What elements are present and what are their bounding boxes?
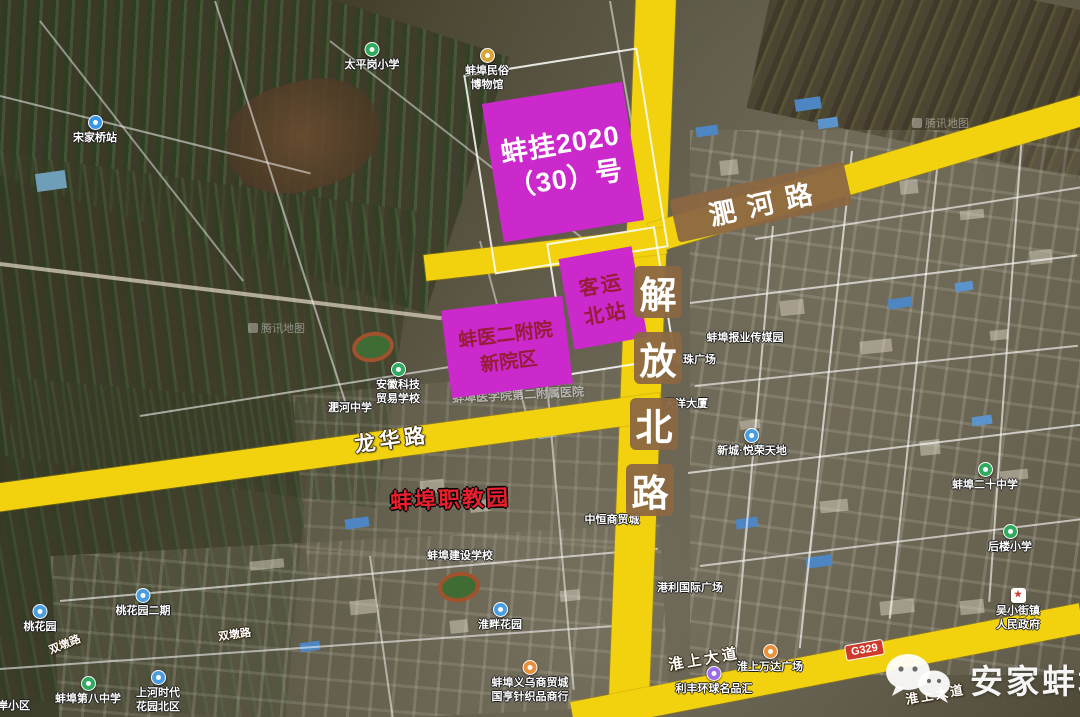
poi: 蚌埠义乌商贸城国亨针织品商行 xyxy=(492,660,569,705)
poi-label: 贸易学校 xyxy=(376,393,420,407)
poi-label: 蚌埠二十中学 xyxy=(952,479,1018,493)
tencent-watermark: 腾讯地图 xyxy=(248,320,305,336)
tencent-logo-icon xyxy=(912,118,922,128)
poi-label: 蚌埠第八中学 xyxy=(55,693,121,707)
jiefang-road-plate-char: 北 xyxy=(630,398,678,450)
poi-label: 吴小街镇 xyxy=(996,605,1040,619)
poi-label: 宋家桥站 xyxy=(73,132,117,146)
poi: 上河时代花园北区 xyxy=(136,670,180,715)
poi-label: 博物馆 xyxy=(465,79,509,93)
poi: 桃花园 xyxy=(24,604,57,635)
poi-label: 太平岗小学 xyxy=(345,59,400,73)
poi-label: 利丰环球名品汇 xyxy=(676,683,753,697)
poi-label: 人民政府 xyxy=(996,619,1040,633)
poi-label: 国亨针织品商行 xyxy=(492,691,569,705)
poi: 蚌埠民俗博物馆 xyxy=(465,48,509,93)
hospital-line2: 新院区 xyxy=(479,344,539,378)
building-block xyxy=(559,589,580,602)
poi-label: 安徽科技 xyxy=(376,379,420,393)
building-block xyxy=(719,159,738,176)
poi-label: 新城·悦荣天地 xyxy=(717,445,787,459)
poi: 蚌埠第八中学 xyxy=(55,676,121,707)
school-icon xyxy=(81,676,96,691)
hospital-annotation: 蚌医二附院 新院区 xyxy=(441,296,573,398)
building-block xyxy=(959,599,984,615)
poi-label: 淝河中学 xyxy=(328,402,372,416)
shopping-icon xyxy=(523,660,538,675)
poi-label: 淮畔花园 xyxy=(478,619,522,633)
school-icon xyxy=(391,362,406,377)
poi: 后楼小学 xyxy=(988,524,1032,555)
education-park-label: 蚌埠职教园 xyxy=(389,480,510,516)
poi-label: 蚌埠建设学校 xyxy=(427,550,493,564)
wechat-account-watermark: 安家蚌埠 xyxy=(882,650,1080,708)
poi-label: 北岸小区 xyxy=(0,700,30,714)
wechat-icon xyxy=(882,650,956,708)
poi: 淮畔花园 xyxy=(478,602,522,633)
poi: 蚌埠报业传媒园 xyxy=(707,332,784,346)
poi: 淝河中学 xyxy=(328,402,372,416)
jiefang-road-plate-char: 放 xyxy=(634,332,682,384)
government-icon: ★ xyxy=(1011,588,1026,603)
poi-label: 后楼小学 xyxy=(988,541,1032,555)
poi: ★吴小街镇人民政府 xyxy=(996,588,1040,633)
land-parcel-annotation: 蚌挂2020 （30）号 xyxy=(482,82,644,242)
poi-label: 蚌埠义乌商贸城 xyxy=(492,677,569,691)
school-icon xyxy=(978,462,993,477)
building-block xyxy=(779,299,804,316)
poi-label: 桃花园 xyxy=(24,621,57,635)
poi-label: 花园北区 xyxy=(136,701,180,715)
transit-icon xyxy=(88,115,103,130)
poi-label: 上河时代 xyxy=(136,687,180,701)
station-line2: 北站 xyxy=(581,294,629,330)
museum-icon xyxy=(480,48,495,63)
satellite-map-view[interactable]: 蚌埠医学院第二附属医院 蚌挂2020 （30）号 客运 北站 蚌医二附院 新院区… xyxy=(0,0,1080,717)
residential-icon xyxy=(33,604,48,619)
shopping-icon xyxy=(763,644,778,659)
poi: 蚌埠二十中学 xyxy=(952,462,1018,493)
tencent-logo-icon xyxy=(248,323,258,333)
poi: 北岸小区 xyxy=(0,700,30,714)
school-icon xyxy=(1003,524,1018,539)
poi-label: 港利国际广场 xyxy=(657,582,723,596)
building-block xyxy=(349,599,376,616)
poi-label: 蚌埠民俗 xyxy=(465,65,509,79)
tencent-watermark: 腾讯地图 xyxy=(912,115,969,131)
poi: 蚌埠建设学校 xyxy=(427,550,493,564)
poi: 桃花园二期 xyxy=(116,588,171,619)
poi: 安徽科技贸易学校 xyxy=(376,362,420,407)
poi: 新城·悦荣天地 xyxy=(717,428,787,459)
tencent-watermark-text: 腾讯地图 xyxy=(925,115,969,131)
residential-icon xyxy=(744,428,759,443)
poi: 太平岗小学 xyxy=(345,42,400,73)
building-block xyxy=(899,179,918,195)
poi: 宋家桥站 xyxy=(73,115,117,146)
poi: 港利国际广场 xyxy=(657,582,723,596)
school-icon xyxy=(365,42,380,57)
building-block xyxy=(449,619,468,634)
poi-label: 桃花园二期 xyxy=(116,605,171,619)
residential-icon xyxy=(151,670,166,685)
residential-icon xyxy=(493,602,508,617)
blue-roof xyxy=(817,117,838,130)
jiefang-road-plate-char: 路 xyxy=(626,464,674,516)
wechat-account-name: 安家蚌埠 xyxy=(970,655,1080,703)
tencent-watermark-text: 腾讯地图 xyxy=(261,320,305,336)
residential-icon xyxy=(136,588,151,603)
poi-label: 蚌埠报业传媒园 xyxy=(707,332,784,346)
jiefang-road-plate-char: 解 xyxy=(634,266,682,318)
